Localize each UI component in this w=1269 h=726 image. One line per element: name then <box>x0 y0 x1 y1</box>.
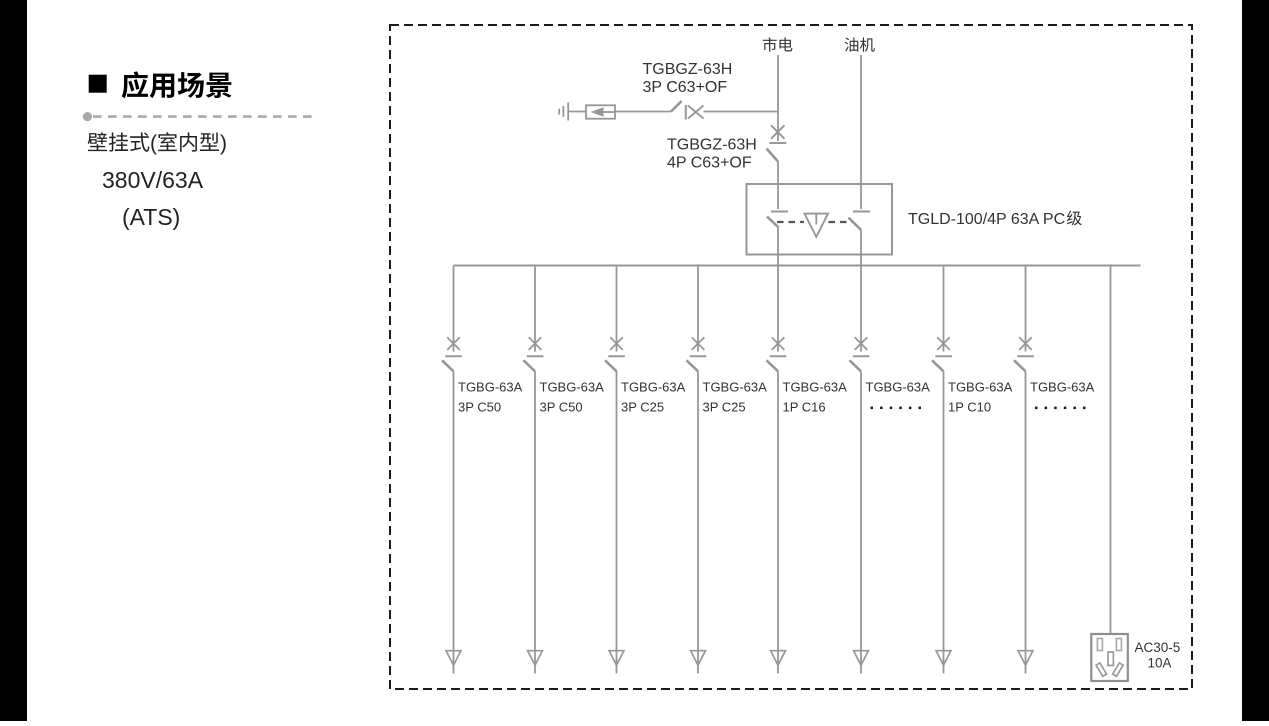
svg-text:TGBG-63A: TGBG-63A <box>458 380 523 395</box>
svg-text:(: ( <box>150 132 157 155</box>
svg-text:TGBG-63A: TGBG-63A <box>621 380 686 395</box>
svg-text:(ATS): (ATS) <box>122 204 180 230</box>
svg-text:TGLD-100/4P 63A PC: TGLD-100/4P 63A PC <box>908 211 1065 228</box>
svg-text:380V/63A: 380V/63A <box>102 167 204 193</box>
svg-text:TGBG-63A: TGBG-63A <box>540 380 605 395</box>
svg-text:TGBG-63A: TGBG-63A <box>1030 380 1095 395</box>
svg-text:3P C63+OF: 3P C63+OF <box>643 79 728 96</box>
svg-text:3P C50: 3P C50 <box>458 400 501 415</box>
svg-text:4P C63+OF: 4P C63+OF <box>667 155 752 172</box>
svg-text:1P C10: 1P C10 <box>948 400 991 415</box>
svg-text:): ) <box>220 132 227 155</box>
svg-text:AC30-5: AC30-5 <box>1135 640 1181 655</box>
svg-text:3P C50: 3P C50 <box>540 400 583 415</box>
svg-text:TGBGZ-63H: TGBGZ-63H <box>667 137 757 154</box>
svg-text:3P C25: 3P C25 <box>621 400 664 415</box>
svg-text:TGBG-63A: TGBG-63A <box>703 380 768 395</box>
svg-text:3P C25: 3P C25 <box>703 400 746 415</box>
svg-text:TGBG-63A: TGBG-63A <box>948 380 1013 395</box>
svg-text:10A: 10A <box>1148 656 1172 671</box>
svg-text:TGBG-63A: TGBG-63A <box>866 380 931 395</box>
svg-text:1P C16: 1P C16 <box>783 400 826 415</box>
svg-text:TGBGZ-63H: TGBGZ-63H <box>643 61 733 78</box>
svg-text:TGBG-63A: TGBG-63A <box>783 380 848 395</box>
